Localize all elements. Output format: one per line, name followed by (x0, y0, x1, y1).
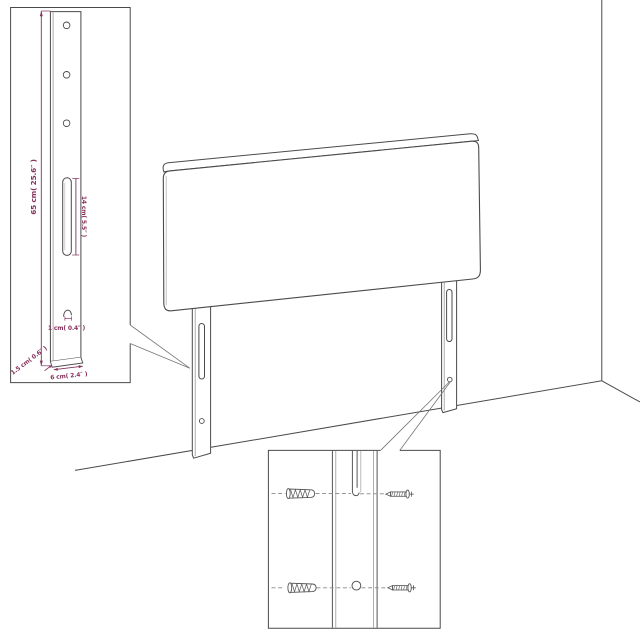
left-leg-slot (199, 324, 205, 380)
assembly-diagram-page: 65 cm( 25.6″ ) 14 cm( 5.5″ ) 1 cm( 0.4″ … (0, 0, 640, 640)
slot-dimension-label: 14 cm( 5.5″ ) (80, 196, 87, 238)
headboard (163, 134, 480, 311)
mounting-detail-inset (268, 450, 440, 628)
leader-line (400, 382, 450, 450)
headboard-front-panel (163, 141, 480, 311)
callout-lines-left (130, 325, 190, 368)
hook-dimension-label: 1 cm( 0.4″ ) (48, 325, 86, 332)
inset-leg-hole (63, 120, 70, 127)
inset-leg-hole (63, 72, 70, 79)
leader-line (130, 325, 190, 368)
inset-leg-slot (63, 178, 72, 256)
headboard-assembly-diagram: 65 cm( 25.6″ ) 14 cm( 5.5″ ) 1 cm( 0.4″ … (0, 0, 640, 640)
inset-border (268, 450, 440, 628)
right-leg-hole (448, 377, 453, 382)
mount-hole (352, 581, 361, 590)
right-leg-slot (447, 290, 452, 342)
height-dimension-label: 65 cm( 25.6″ ) (29, 159, 38, 215)
wall-plug-icon (286, 489, 314, 499)
left-leg-hole (199, 419, 204, 424)
inset-leg-hole (63, 22, 70, 29)
floor-line-right (602, 381, 640, 402)
wall-plug-icon (288, 583, 316, 593)
headboard-left-leg (192, 295, 210, 458)
leader-line (130, 344, 190, 369)
leg-detail-inset: 65 cm( 25.6″ ) 14 cm( 5.5″ ) 1 cm( 0.4″ … (10, 8, 131, 383)
